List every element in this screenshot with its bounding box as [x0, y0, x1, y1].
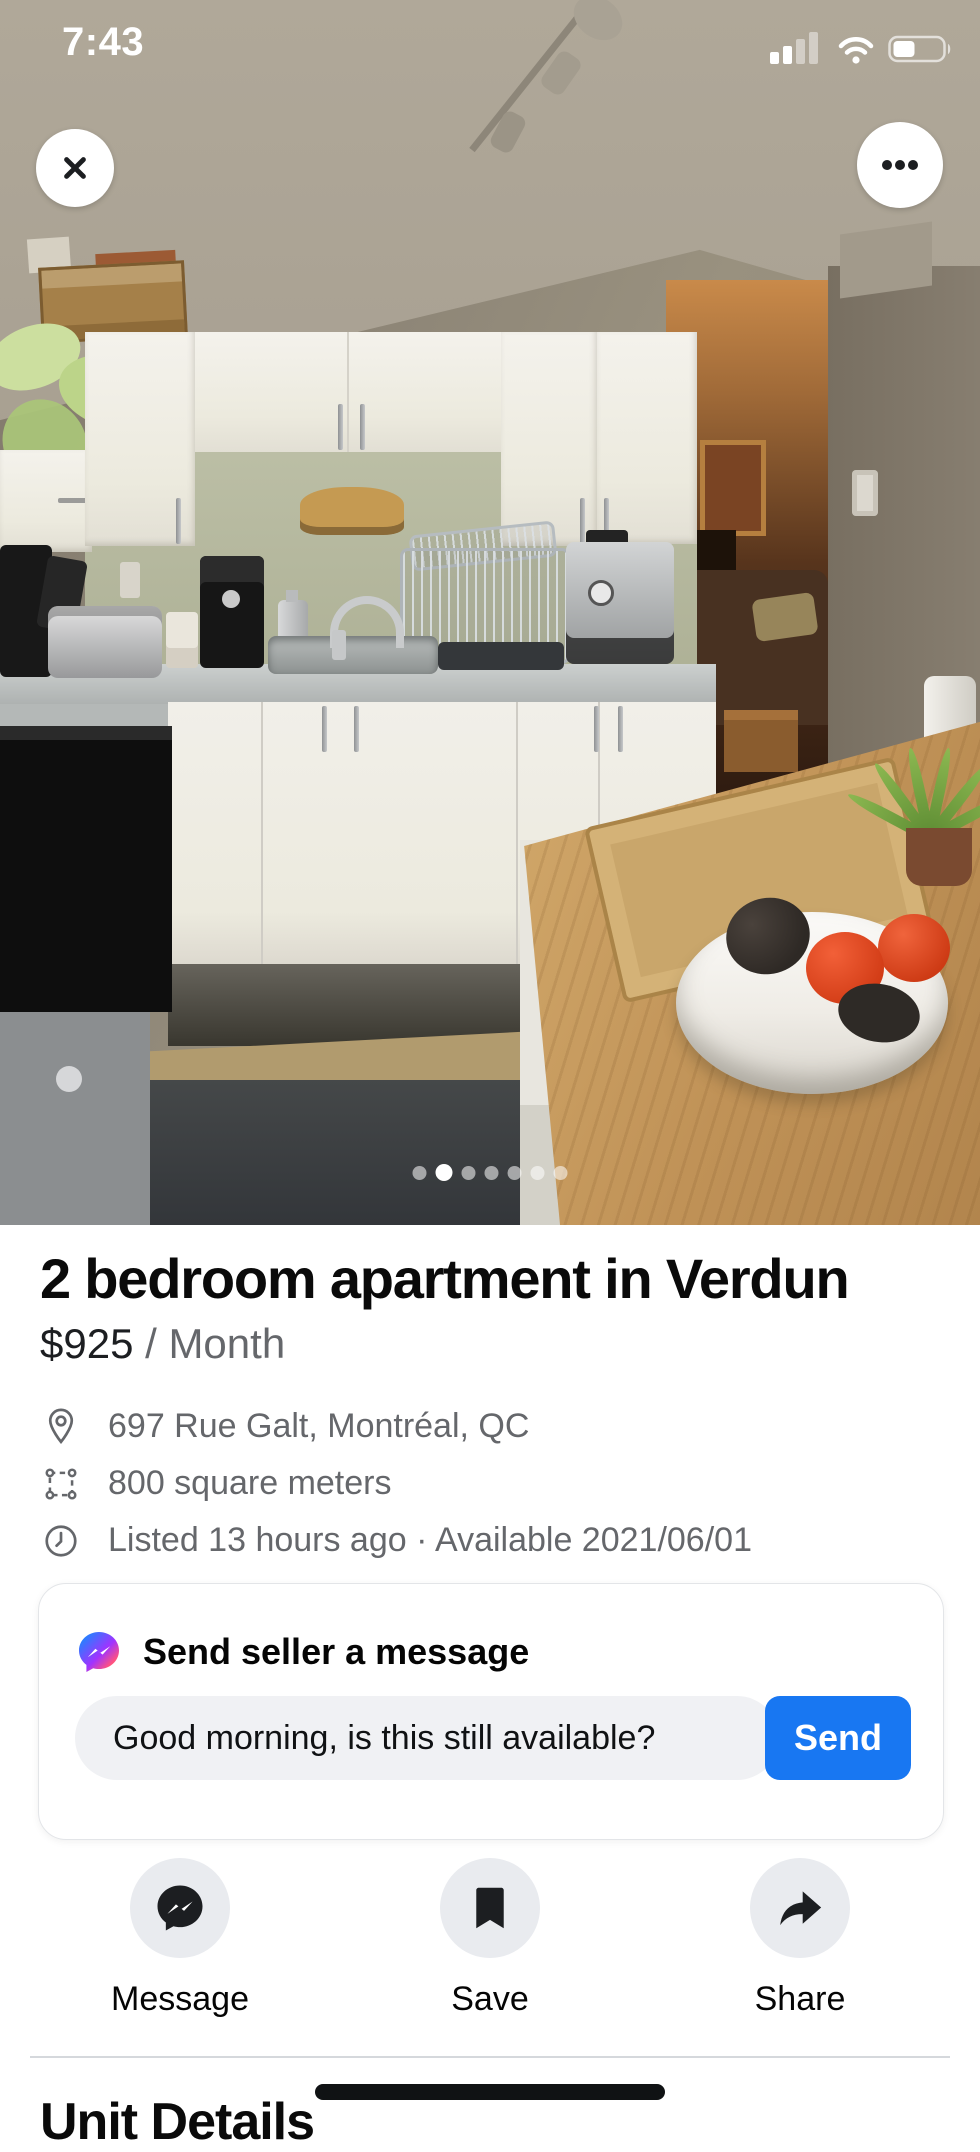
drawer-knob: [56, 1066, 82, 1092]
spider-plant: [880, 716, 980, 886]
status-bar: 7:43: [0, 0, 980, 90]
photo-dot[interactable]: [554, 1166, 568, 1180]
listing-address: 697 Rue Galt, Montréal, QC: [108, 1407, 529, 1446]
message-input[interactable]: [75, 1696, 779, 1780]
photo-dot[interactable]: [485, 1166, 499, 1180]
espresso-gauge: [588, 580, 614, 606]
location-pin-icon: [40, 1406, 82, 1448]
clock-icon: [40, 1520, 82, 1562]
photo-dot[interactable]: [531, 1166, 545, 1180]
couch-cushion: [751, 592, 818, 642]
wifi-icon: [836, 33, 876, 65]
toaster: [48, 606, 162, 678]
messenger-icon: [75, 1628, 123, 1676]
lower-drawer: [0, 1012, 150, 1225]
action-bar: Message Save Share: [0, 1858, 980, 2028]
drying-mat: [438, 642, 564, 670]
share-action-label: Share: [755, 1980, 846, 2019]
messenger-icon: [130, 1858, 230, 1958]
power-outlet: [120, 562, 140, 598]
cabinet-handle: [322, 706, 327, 752]
coffee-maker-dial: [222, 590, 240, 608]
listing-details: 697 Rue Galt, Montréal, QC 800 square me…: [40, 1398, 940, 1569]
cellular-signal-icon: [770, 32, 824, 66]
side-table: [724, 710, 798, 772]
save-action-label: Save: [451, 1980, 529, 2019]
wall-ornament: [300, 487, 404, 527]
bookmark-icon: [440, 1858, 540, 1958]
framed-picture: [700, 440, 766, 536]
plant-pot: [906, 828, 972, 886]
marketplace-listing-screen: { "status_bar": { "time": "7:43" }, "pho…: [0, 0, 980, 2121]
coffee-maker: [200, 556, 264, 668]
light-switch: [852, 470, 878, 516]
photo-dot[interactable]: [462, 1166, 476, 1180]
wall-corner: [840, 222, 932, 299]
close-icon: [54, 147, 96, 189]
more-options-icon: [876, 141, 924, 189]
upper-cabinet: [597, 332, 697, 544]
share-action-button[interactable]: Share: [690, 1858, 910, 2019]
canister: [166, 612, 198, 668]
more-options-button[interactable]: [857, 122, 943, 208]
detail-row-location: 697 Rue Galt, Montréal, QC: [40, 1398, 940, 1455]
message-card-header: Send seller a message: [75, 1628, 529, 1676]
cabinet-handle: [338, 404, 343, 450]
message-action-label: Message: [111, 1980, 249, 2019]
upper-cabinet-left: [0, 450, 92, 552]
message-action-button[interactable]: Message: [70, 1858, 290, 2019]
listing-price-unit: / Month: [145, 1320, 285, 1367]
photo-dot[interactable]: [508, 1166, 522, 1180]
cabinet-handle: [360, 404, 365, 450]
share-icon: [750, 1858, 850, 1958]
listing-photo[interactable]: 7:43: [0, 0, 980, 1225]
listing-listed-info: Listed 13 hours ago · Available 2021/06/…: [108, 1521, 752, 1560]
home-indicator[interactable]: [315, 2084, 665, 2100]
cabinet-handle: [176, 498, 181, 544]
detail-row-size: 800 square meters: [40, 1455, 940, 1512]
faucet-base: [332, 630, 346, 660]
cabinet-handle: [594, 706, 599, 752]
photo-carousel-dots[interactable]: [413, 1164, 568, 1181]
tomato: [878, 914, 950, 982]
status-time: 7:43: [62, 20, 144, 65]
close-button[interactable]: [36, 129, 114, 207]
save-action-button[interactable]: Save: [380, 1858, 600, 2019]
status-icons: [770, 32, 954, 66]
send-button[interactable]: Send: [765, 1696, 911, 1780]
cabinet-handle: [618, 706, 623, 752]
listing-price-row: $925 / Month: [40, 1320, 285, 1368]
cabinet-handle: [580, 498, 585, 544]
detail-row-listed: Listed 13 hours ago · Available 2021/06/…: [40, 1512, 940, 1569]
section-divider: [30, 2056, 950, 2058]
unit-details-heading: Unit Details: [40, 2092, 314, 2152]
listing-title: 2 bedroom apartment in Verdun: [40, 1246, 940, 1311]
upper-cabinet-over-sink: [195, 332, 501, 452]
photo-dot-active[interactable]: [436, 1164, 453, 1181]
cabinet-handle: [354, 706, 359, 752]
photo-dot[interactable]: [413, 1166, 427, 1180]
send-message-card: Send seller a message Send: [38, 1583, 944, 1840]
listing-size: 800 square meters: [108, 1464, 392, 1503]
area-dimensions-icon: [40, 1463, 82, 1505]
message-card-title: Send seller a message: [143, 1631, 529, 1673]
listing-price: $925: [40, 1320, 133, 1367]
stove: [0, 726, 172, 1012]
battery-icon: [888, 33, 954, 65]
espresso-machine: [566, 542, 674, 664]
